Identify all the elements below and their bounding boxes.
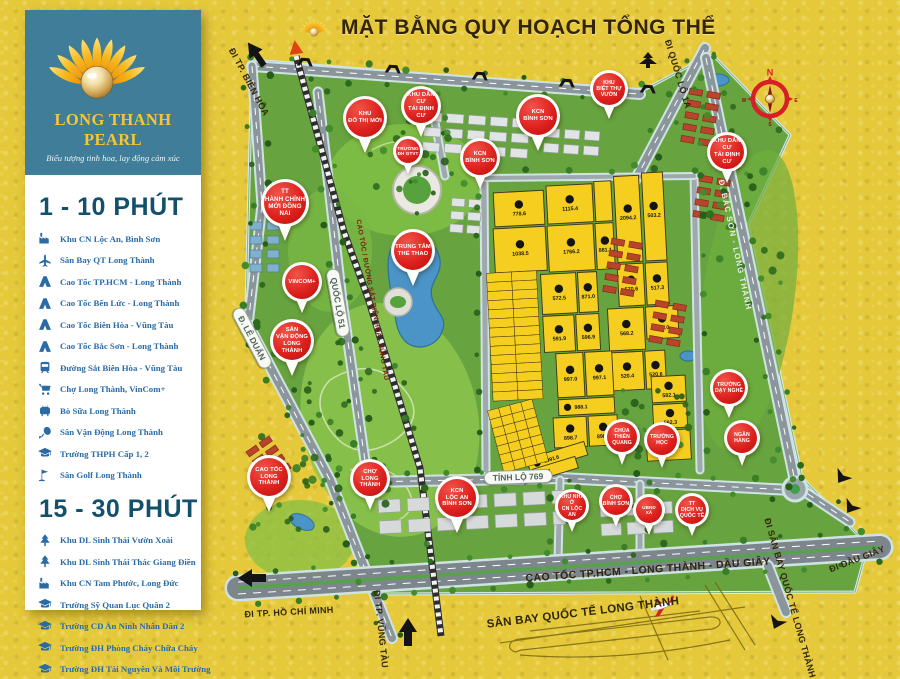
page-title-bar: MẶT BẰNG QUY HOẠCH TỔNG THỂ <box>296 12 716 44</box>
poi-label: Trường Sỹ Quan Lục Quân 2 <box>60 600 170 610</box>
poi-label: Bò Sữa Long Thành <box>60 406 136 416</box>
poi-label: Trường ĐH Tài Nguyên Và Môi Trường <box>60 664 210 674</box>
poi-list-item: Trường ĐH Phòng Cháy Chữa Cháy <box>37 640 189 655</box>
school-icon <box>37 446 53 461</box>
poi-list-item: Cao Tốc Biên Hòa - Vũng Tàu <box>37 317 189 332</box>
poi-list-item: Trường THPH Cấp 1, 2 <box>37 446 189 461</box>
svg-text:572.5: 572.5 <box>552 295 566 302</box>
poi-list-item: Trường ĐH Tài Nguyên Và Môi Trường <box>37 662 189 677</box>
brand-logo: LONG THANH PEARL Biểu tượng tinh hoa, la… <box>25 10 201 175</box>
svg-text:568.2: 568.2 <box>620 331 634 338</box>
cart-icon <box>37 382 53 397</box>
school-icon <box>37 662 53 677</box>
svg-text:517.3: 517.3 <box>651 285 665 292</box>
poi-label: Sân Vận Động Long Thành <box>60 427 163 437</box>
poi-list-item: Đường Sắt Biên Hòa - Vũng Tàu <box>37 360 189 375</box>
poi-label: Khu DL Sinh Thái Vườn Xoài <box>60 535 173 545</box>
compass-n: N <box>767 68 774 78</box>
svg-text:562.3: 562.3 <box>664 420 678 427</box>
svg-text:997.0: 997.0 <box>564 376 578 383</box>
golf-icon <box>37 468 53 483</box>
svg-text:596.9: 596.9 <box>582 334 596 341</box>
poi-list-item: Khu CN Tam Phước, Long Đức <box>37 576 189 591</box>
svg-text:503.2: 503.2 <box>647 213 661 220</box>
poi-list-item: Cao Tốc TP.HCM - Long Thành <box>37 274 189 289</box>
highway-icon <box>37 296 53 311</box>
park-icon <box>37 533 53 548</box>
poi-label: Khu DL Sinh Thái Thác Giang Điền <box>60 557 196 567</box>
section-heading-1: 1 - 10 PHÚT <box>39 193 189 222</box>
poi-list-item: Sân Bay QT Long Thành <box>37 253 189 268</box>
highway-icon <box>37 274 53 289</box>
school-icon <box>37 619 53 634</box>
poi-list-item: Sân Golf Long Thành <box>37 468 189 483</box>
highway-icon <box>37 317 53 332</box>
poi-list-item: Cao Tốc Bến Lức - Long Thành <box>37 296 189 311</box>
poi-label: Khu CN Lộc An, Bình Sơn <box>60 234 160 244</box>
svg-text:871.0: 871.0 <box>581 294 595 301</box>
poi-list: Khu CN Lộc An, Bình SơnSân Bay QT Long T… <box>37 231 189 483</box>
poi-list-item: Khu CN Lộc An, Bình Sơn <box>37 231 189 246</box>
compass-w: W <box>742 98 747 104</box>
svg-text:988.1: 988.1 <box>574 404 587 411</box>
svg-text:1766.2: 1766.2 <box>563 249 580 256</box>
compass-rose: N E S W <box>741 68 799 126</box>
svg-text:582.1: 582.1 <box>662 392 676 399</box>
poi-list-item: Trường CD An Ninh Nhân Dân 2 <box>37 619 189 634</box>
factory-icon <box>37 231 53 246</box>
sidebar: LONG THANH PEARL Biểu tượng tinh hoa, la… <box>25 10 201 610</box>
poi-label: Cao Tốc Biên Hòa - Vũng Tàu <box>60 320 173 330</box>
page-title: MẶT BẰNG QUY HOẠCH TỔNG THỂ <box>341 16 716 40</box>
sunburst-pearl-icon <box>33 20 161 108</box>
poi-label: Sân Bay QT Long Thành <box>60 255 155 265</box>
svg-text:1115.4: 1115.4 <box>562 206 578 213</box>
svg-text:609.7: 609.7 <box>662 448 676 455</box>
poi-label: Khu CN Tam Phước, Long Đức <box>60 578 179 588</box>
svg-text:591.9: 591.9 <box>553 336 567 343</box>
svg-text:520.4: 520.4 <box>621 373 635 380</box>
poi-label: Trường THPH Cấp 1, 2 <box>60 449 149 459</box>
poi-label: Cao Tốc Bắc Sơn - Long Thành <box>60 341 178 351</box>
svg-text:898.8: 898.8 <box>597 433 611 440</box>
poi-list-item: Chợ Long Thành, VinCom+ <box>37 382 189 397</box>
plane-icon <box>37 253 53 268</box>
section-heading-2: 15 - 30 PHÚT <box>39 495 189 524</box>
school-icon <box>37 640 53 655</box>
brand-tagline: Biểu tượng tinh hoa, lay động cảm xúc <box>33 153 193 163</box>
poster: 778.61115.42094.2503.21038.51766.2881.15… <box>0 0 900 679</box>
park-icon <box>37 554 53 569</box>
poi-list: Khu DL Sinh Thái Vườn XoàiKhu DL Sinh Th… <box>37 533 189 679</box>
sports-icon <box>37 425 53 440</box>
sidebar-sections: 1 - 10 PHÚTKhu CN Lộc An, Bình SơnSân Ba… <box>25 175 201 679</box>
compass-e: E <box>794 98 798 104</box>
poi-label: Trường CD An Ninh Nhân Dân 2 <box>60 621 184 631</box>
cow-icon <box>37 403 53 418</box>
factory-icon <box>37 576 53 591</box>
highway-icon <box>37 339 53 354</box>
poi-list-item: Trường Sỹ Quan Lục Quân 2 <box>37 597 189 612</box>
svg-text:997.1: 997.1 <box>593 375 607 382</box>
sun-pearl-icon <box>296 12 332 44</box>
poi-label: Cao Tốc TP.HCM - Long Thành <box>60 277 181 287</box>
poi-label: Cao Tốc Bến Lức - Long Thành <box>60 298 179 308</box>
poi-list-item: Khu DL Sinh Thái Thác Giang Điền <box>37 554 189 569</box>
poi-list-item: Khu DL Sinh Thái Vườn Xoài <box>37 533 189 548</box>
poi-list-item: Bò Sữa Long Thành <box>37 403 189 418</box>
poi-list-item: Cao Tốc Bắc Sơn - Long Thành <box>37 339 189 354</box>
poi-label: Đường Sắt Biên Hòa - Vũng Tàu <box>60 363 182 373</box>
poi-label: Sân Golf Long Thành <box>60 470 142 480</box>
compass-s: S <box>768 122 772 126</box>
poi-label: Trường ĐH Phòng Cháy Chữa Cháy <box>60 643 198 653</box>
svg-text:778.6: 778.6 <box>512 211 526 218</box>
poi-list-item: Sân Vận Động Long Thành <box>37 425 189 440</box>
svg-text:1038.5: 1038.5 <box>512 251 529 258</box>
poi-label: Chợ Long Thành, VinCom+ <box>60 384 166 394</box>
train-icon <box>37 360 53 375</box>
school-icon <box>37 597 53 612</box>
svg-text:2094.2: 2094.2 <box>620 215 637 222</box>
brand-name: LONG THANH PEARL <box>33 110 193 150</box>
svg-text:898.7: 898.7 <box>564 435 578 442</box>
